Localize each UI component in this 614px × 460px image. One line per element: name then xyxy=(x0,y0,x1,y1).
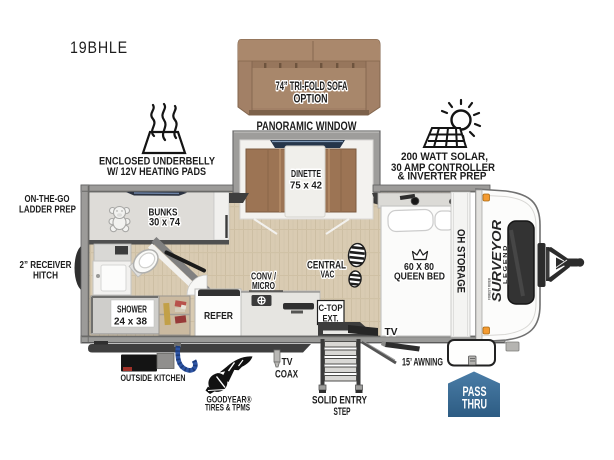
svg-text:ON-THE-GO: ON-THE-GO xyxy=(25,194,70,205)
svg-text:DINETTE: DINETTE xyxy=(291,169,321,180)
svg-text:QUEEN BED: QUEEN BED xyxy=(394,271,445,283)
svg-text:& INVERTER PREP: & INVERTER PREP xyxy=(398,171,487,183)
svg-text:SHOWER: SHOWER xyxy=(117,305,148,316)
svg-text:24 x 38: 24 x 38 xyxy=(114,316,147,328)
svg-text:REFER: REFER xyxy=(204,311,234,322)
svg-text:15’ AWNING: 15’ AWNING xyxy=(402,357,443,369)
svg-text:MICRO: MICRO xyxy=(252,280,275,292)
svg-text:STEP: STEP xyxy=(334,406,351,418)
svg-text:75 x 42: 75 x 42 xyxy=(290,181,322,192)
svg-text:OUTSIDE KITCHEN: OUTSIDE KITCHEN xyxy=(121,373,186,384)
svg-text:LADDER PREP: LADDER PREP xyxy=(19,205,76,216)
svg-text:SOLID ENTRY: SOLID ENTRY xyxy=(312,395,367,407)
svg-text:C-TOP: C-TOP xyxy=(319,303,344,314)
svg-text:W/ 12V HEATING PADS: W/ 12V HEATING PADS xyxy=(107,166,206,178)
svg-text:TV: TV xyxy=(282,356,293,368)
svg-text:OH STORAGE: OH STORAGE xyxy=(455,229,467,293)
svg-text:TIRES & TPMS: TIRES & TPMS xyxy=(205,403,250,413)
svg-text:HITCH: HITCH xyxy=(33,270,58,282)
svg-text:VAC: VAC xyxy=(321,269,335,281)
svg-text:THRU: THRU xyxy=(462,397,487,412)
svg-text:FOREST RIVER: FOREST RIVER xyxy=(488,277,492,300)
svg-text:74” TRI-FOLD SOFA: 74” TRI-FOLD SOFA xyxy=(276,81,348,93)
svg-text:OPTION: OPTION xyxy=(294,94,328,106)
svg-text:30 x 74: 30 x 74 xyxy=(149,217,181,229)
svg-text:19BHLE: 19BHLE xyxy=(70,38,128,57)
svg-text:TV: TV xyxy=(385,326,398,338)
svg-text:COAX: COAX xyxy=(275,369,298,381)
svg-text:SURVEYOR: SURVEYOR xyxy=(490,220,504,302)
